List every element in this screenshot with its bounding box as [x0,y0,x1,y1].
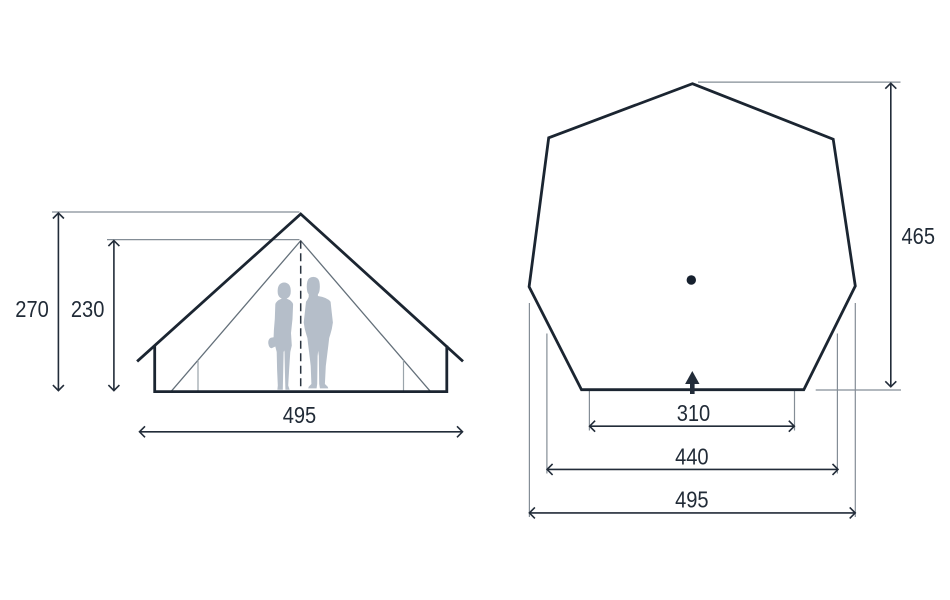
svg-text:270: 270 [15,296,49,322]
svg-text:495: 495 [675,487,709,513]
svg-text:310: 310 [677,400,711,426]
svg-text:440: 440 [675,444,709,470]
svg-text:495: 495 [283,402,317,428]
svg-text:230: 230 [71,296,105,322]
svg-text:465: 465 [902,223,936,249]
